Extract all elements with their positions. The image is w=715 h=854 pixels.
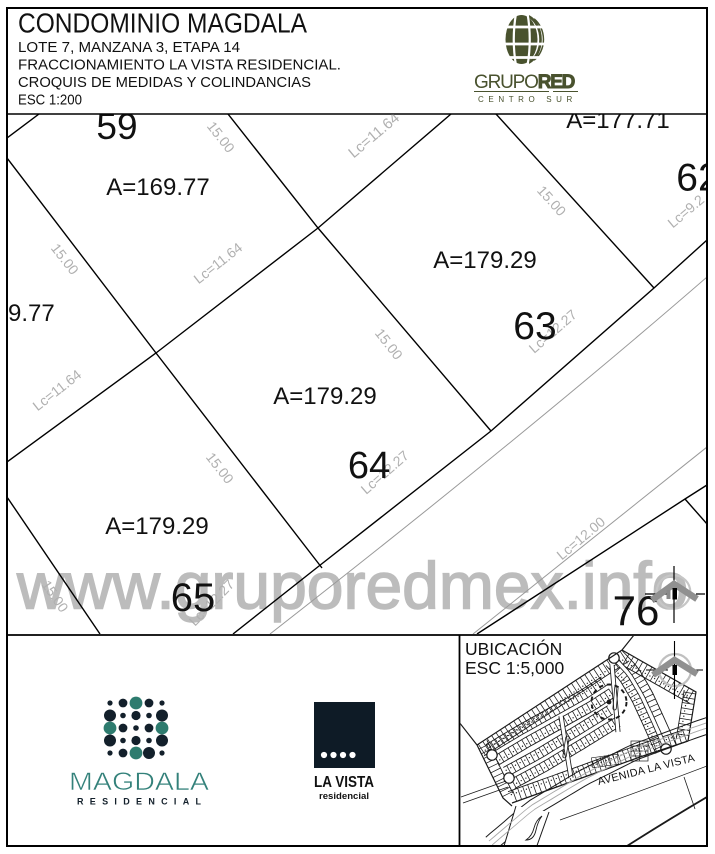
svg-text:15.00: 15.00 [534, 182, 569, 219]
svg-text:LA VISTA: LA VISTA [314, 774, 374, 791]
svg-text:A=169.77: A=169.77 [0, 300, 55, 327]
svg-text:59: 59 [96, 106, 137, 147]
svg-text:64: 64 [348, 445, 390, 487]
svg-text:Lc=11.64: Lc=11.64 [345, 109, 403, 161]
svg-text:CONDOMINIO MAGDALA: CONDOMINIO MAGDALA [18, 8, 307, 39]
svg-text:GRUPORED: GRUPORED [474, 72, 575, 93]
svg-text:FRACCIONAMIENTO LA VISTA RESID: FRACCIONAMIENTO LA VISTA RESIDENCIAL. [18, 57, 341, 74]
svg-text:A=169.77: A=169.77 [106, 174, 209, 201]
svg-text:LOTE 7, MANZANA 3, ETAPA 14: LOTE 7, MANZANA 3, ETAPA 14 [18, 39, 240, 56]
svg-text:www.gruporedmex.info: www.gruporedmex.info [16, 549, 688, 623]
svg-text:CROQUIS DE MEDIDAS Y COLINDANC: CROQUIS DE MEDIDAS Y COLINDANCIAS [18, 74, 311, 91]
svg-text:65: 65 [171, 576, 216, 620]
svg-text:62: 62 [676, 157, 715, 200]
svg-text:A=179.29: A=179.29 [273, 383, 376, 410]
svg-text:ESC 1:200: ESC 1:200 [18, 92, 82, 109]
svg-text:AVENIDA LA VISTA: AVENIDA LA VISTA [596, 752, 696, 788]
svg-text:RESIDENCIAL: RESIDENCIAL [77, 797, 202, 807]
svg-text:Lc=11.64: Lc=11.64 [30, 366, 85, 414]
svg-text:ESC 1:5,000: ESC 1:5,000 [465, 658, 564, 678]
svg-text:15.00: 15.00 [372, 325, 406, 363]
svg-text:MAGDALA: MAGDALA [69, 768, 209, 796]
svg-text:CENTRO SUR: CENTRO SUR [478, 95, 577, 104]
svg-text:15.00: 15.00 [48, 240, 82, 278]
svg-text:A=179.29: A=179.29 [105, 513, 208, 540]
svg-text:Lc=11.64: Lc=11.64 [191, 239, 246, 287]
svg-text:63: 63 [513, 305, 556, 348]
svg-text:residencial: residencial [319, 791, 369, 802]
svg-text:15.00: 15.00 [204, 118, 238, 156]
svg-text:A=177.71: A=177.71 [566, 107, 669, 134]
svg-text:15.00: 15.00 [203, 449, 237, 487]
svg-text:UBICACIÓN: UBICACIÓN [465, 638, 562, 659]
svg-text:A=179.29: A=179.29 [433, 247, 536, 274]
